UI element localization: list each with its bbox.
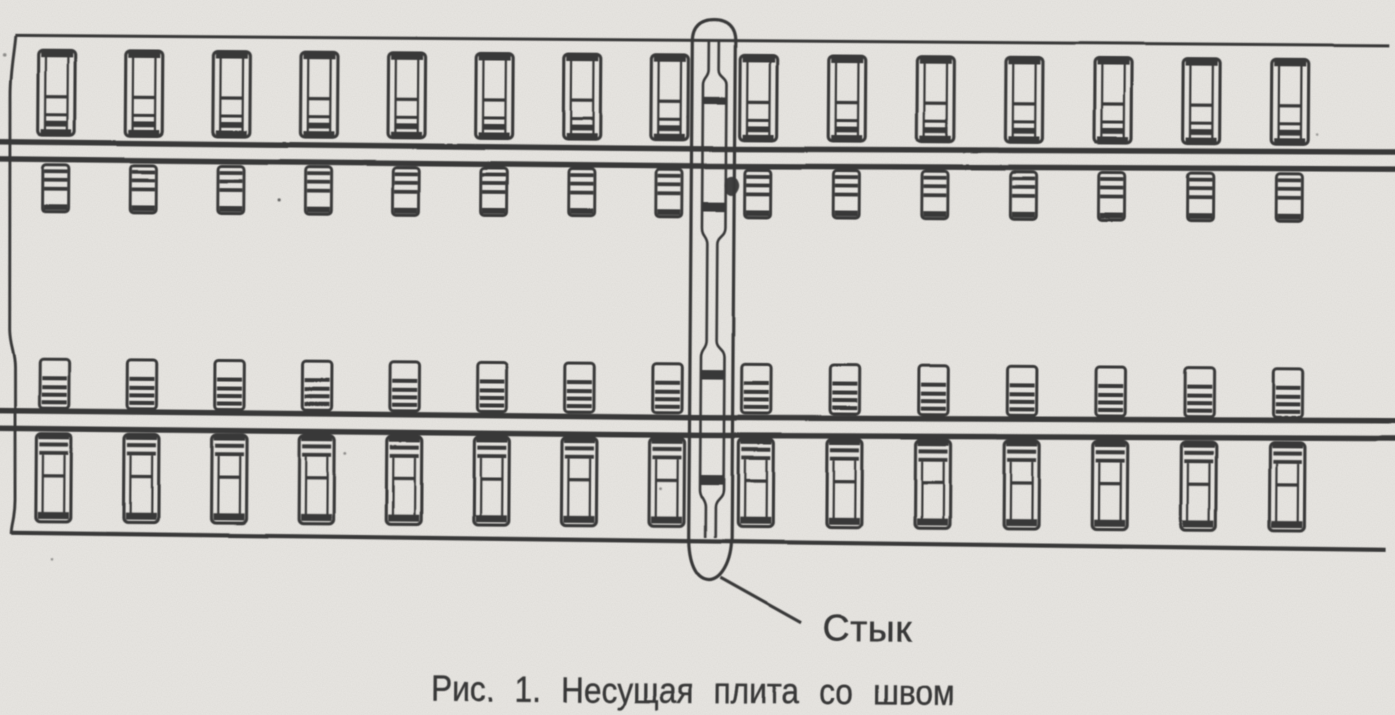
svg-text:Стык: Стык [822,606,912,649]
svg-text:Рис. 1. Несущая плита со швом: Рис. 1. Несущая плита со швом [431,669,954,713]
